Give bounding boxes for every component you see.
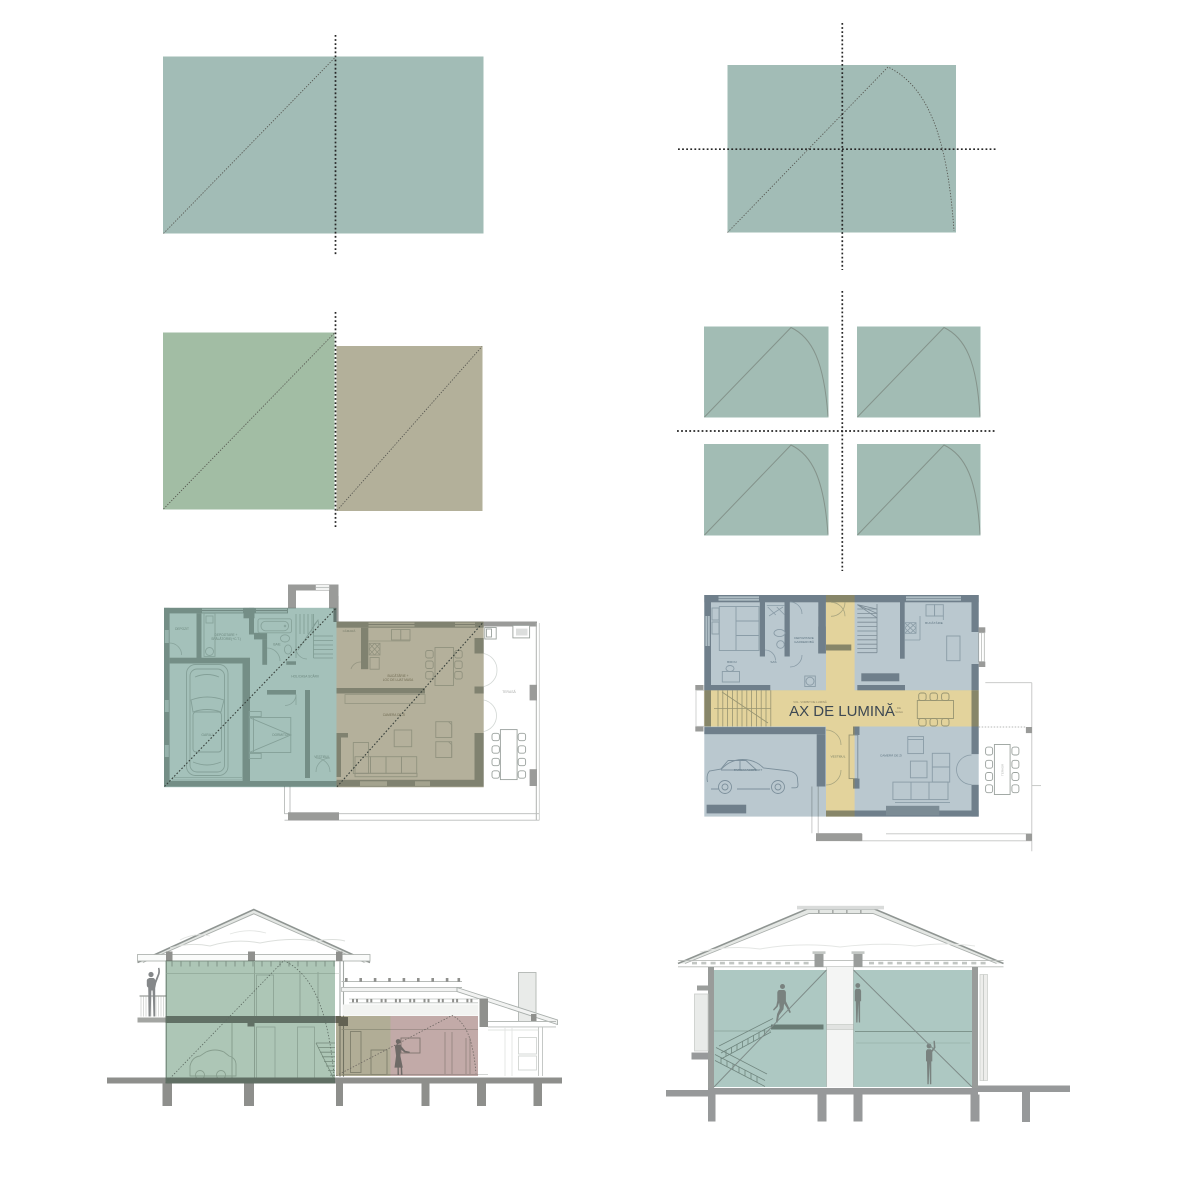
svg-text:SAGA: SAGA: [895, 710, 903, 714]
svg-text:TERASĂ: TERASĂ: [502, 690, 516, 694]
svg-text:TERASĂ: TERASĂ: [1000, 764, 1004, 776]
svg-text:AX DE LUMINĂ: AX DE LUMINĂ: [789, 703, 895, 720]
